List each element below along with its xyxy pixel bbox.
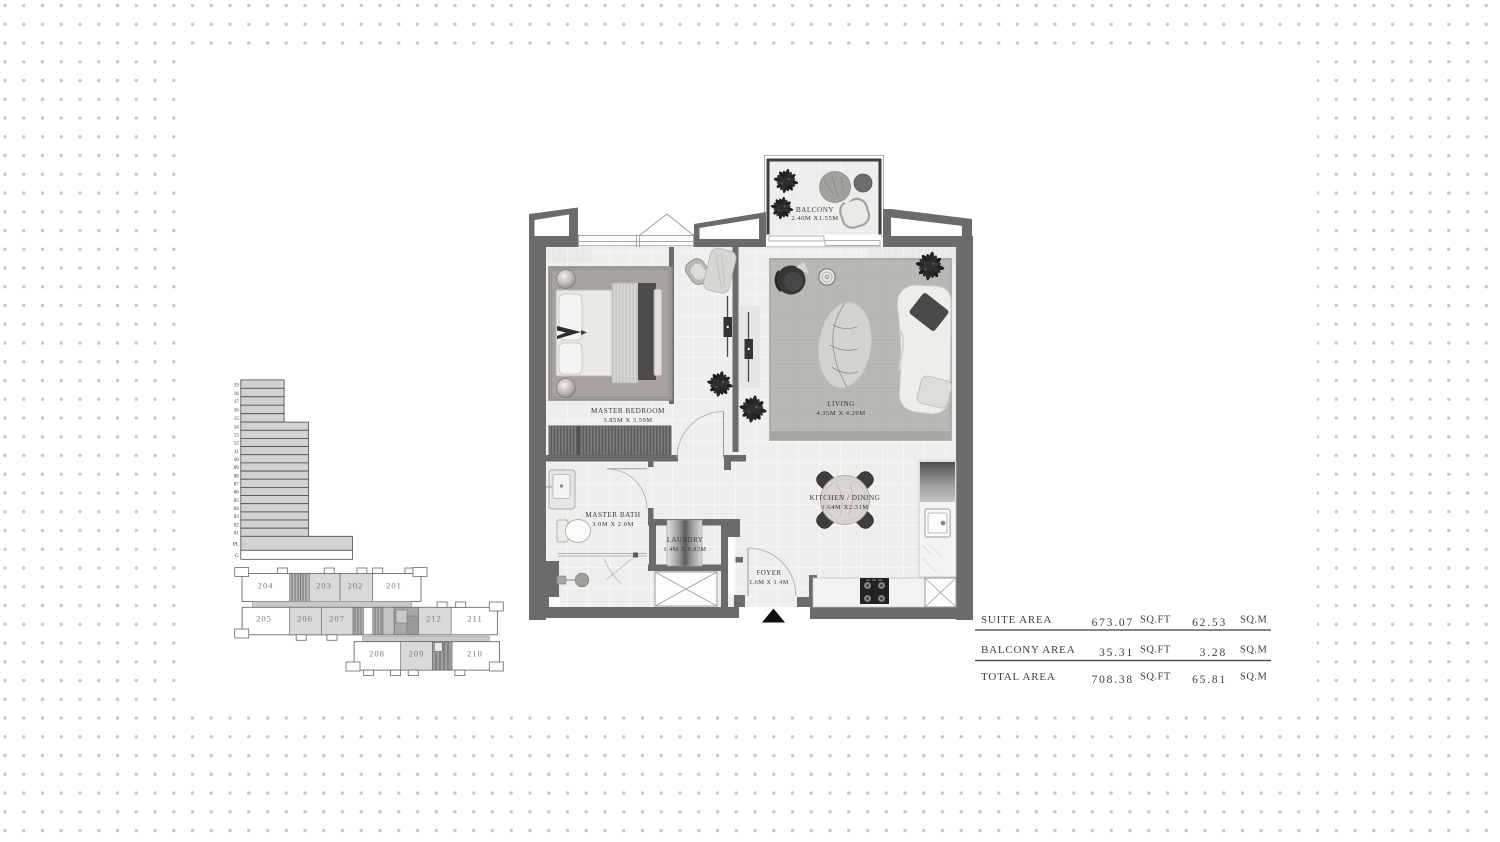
- svg-text:206: 206: [297, 614, 313, 624]
- svg-text:211: 211: [467, 614, 482, 624]
- svg-text:16: 16: [234, 409, 240, 414]
- svg-text:204: 204: [258, 581, 274, 591]
- svg-text:17: 17: [234, 400, 240, 405]
- svg-text:TOTAL AREA: TOTAL AREA: [981, 671, 1056, 683]
- svg-text:18: 18: [234, 392, 240, 397]
- svg-text:02: 02: [234, 523, 240, 528]
- svg-text:202: 202: [348, 581, 364, 591]
- svg-text:SQ.M: SQ.M: [1240, 645, 1268, 656]
- svg-text:208: 208: [369, 649, 385, 659]
- svg-text:19: 19: [234, 383, 240, 388]
- svg-text:LAUNDRY: LAUNDRY: [667, 537, 703, 544]
- svg-text:10: 10: [234, 458, 240, 463]
- svg-text:SQ.M: SQ.M: [1240, 672, 1268, 683]
- svg-text:BALCONY AREA: BALCONY AREA: [981, 644, 1075, 656]
- svg-text:BALCONY: BALCONY: [796, 206, 835, 214]
- svg-text:LIVING: LIVING: [827, 400, 855, 408]
- svg-text:15: 15: [234, 417, 240, 422]
- svg-text:SQ.FT: SQ.FT: [1140, 645, 1171, 656]
- svg-text:13: 13: [234, 434, 240, 439]
- svg-text:MASTER BATH: MASTER BATH: [585, 511, 640, 519]
- svg-text:11: 11: [234, 450, 239, 455]
- svg-text:06: 06: [234, 491, 240, 496]
- svg-text:210: 210: [467, 649, 483, 659]
- svg-text:205: 205: [256, 614, 272, 624]
- svg-text:3.85M X 3.59M: 3.85M X 3.59M: [603, 417, 652, 424]
- svg-text:SQ.FT: SQ.FT: [1140, 672, 1171, 683]
- svg-text:1.6M X 1.4M: 1.6M X 1.4M: [749, 579, 789, 586]
- svg-text:FOYER: FOYER: [757, 570, 782, 577]
- svg-text:1.64M X2.31M: 1.64M X2.31M: [821, 504, 868, 511]
- svg-text:05: 05: [234, 499, 240, 504]
- svg-text:2.40M X1.55M: 2.40M X1.55M: [791, 215, 838, 222]
- svg-text:G: G: [235, 554, 239, 559]
- svg-text:12: 12: [234, 442, 240, 447]
- svg-text:PL: PL: [233, 543, 239, 548]
- svg-text:14: 14: [234, 425, 240, 430]
- svg-text:08: 08: [234, 474, 240, 479]
- svg-text:203: 203: [316, 581, 332, 591]
- svg-text:207: 207: [329, 614, 345, 624]
- svg-text:01: 01: [234, 532, 240, 537]
- svg-text:SQ.M: SQ.M: [1240, 615, 1268, 626]
- svg-text:MASTER BEDROOM: MASTER BEDROOM: [591, 407, 665, 415]
- svg-text:09: 09: [234, 466, 240, 471]
- svg-text:KITCHEN / DINING: KITCHEN / DINING: [810, 494, 881, 502]
- svg-text:3.28: 3.28: [1200, 647, 1227, 659]
- svg-text:201: 201: [386, 581, 402, 591]
- svg-text:708.38: 708.38: [1092, 674, 1134, 686]
- svg-text:SQ.FT: SQ.FT: [1140, 615, 1171, 626]
- svg-text:03: 03: [234, 515, 240, 520]
- svg-text:1.4M X 0.83M: 1.4M X 0.83M: [663, 546, 706, 553]
- svg-text:35.31: 35.31: [1099, 647, 1134, 659]
- svg-text:212: 212: [426, 614, 442, 624]
- svg-text:62.53: 62.53: [1192, 617, 1227, 629]
- svg-text:SUITE AREA: SUITE AREA: [981, 614, 1052, 626]
- svg-text:07: 07: [234, 483, 240, 488]
- svg-text:04: 04: [234, 507, 240, 512]
- svg-text:209: 209: [409, 649, 425, 659]
- svg-text:65.81: 65.81: [1192, 674, 1227, 686]
- svg-text:673.07: 673.07: [1092, 617, 1134, 629]
- svg-text:4.35M X 4.20M: 4.35M X 4.20M: [816, 410, 865, 417]
- svg-text:3.0M X 2.0M: 3.0M X 2.0M: [592, 521, 634, 528]
